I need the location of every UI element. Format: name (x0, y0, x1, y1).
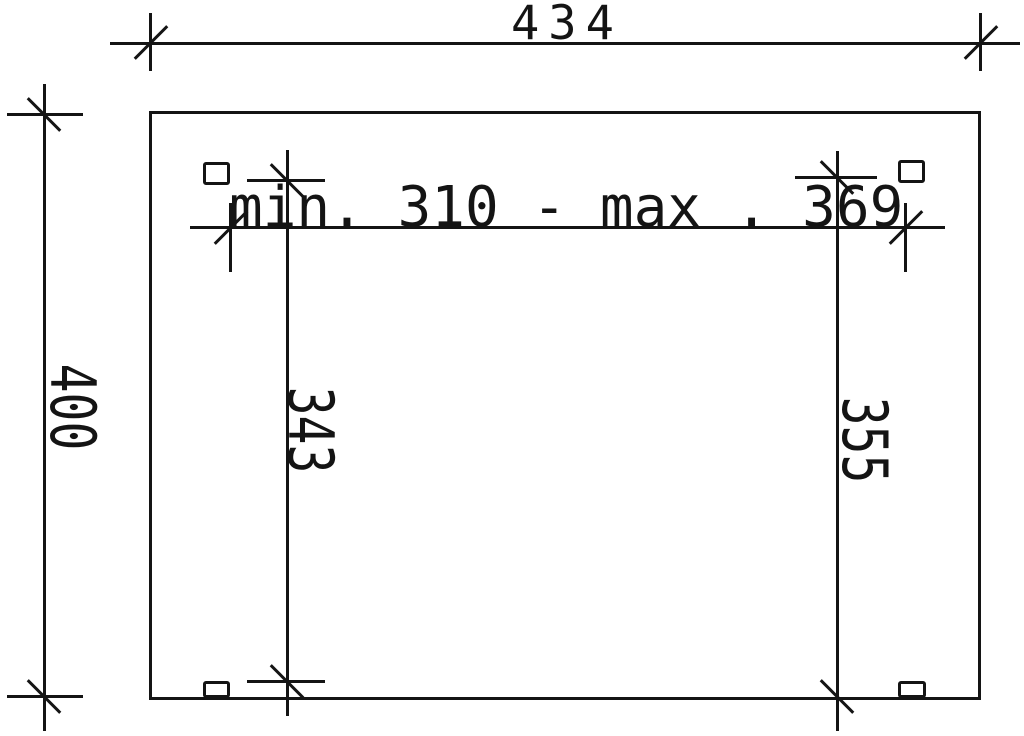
dim-inner-span-extension-right (904, 203, 907, 272)
post-marker-bottom-left (203, 681, 230, 698)
post-marker-top-left (203, 162, 230, 185)
dim-overall-width-label: 434 (511, 0, 623, 47)
dim-inner-span-label: min. 310 - max . 369 (229, 180, 903, 236)
post-marker-bottom-right (898, 681, 926, 698)
technical-drawing-canvas: 434 400 min. 310 - max . 369 343 355 (0, 0, 1024, 736)
